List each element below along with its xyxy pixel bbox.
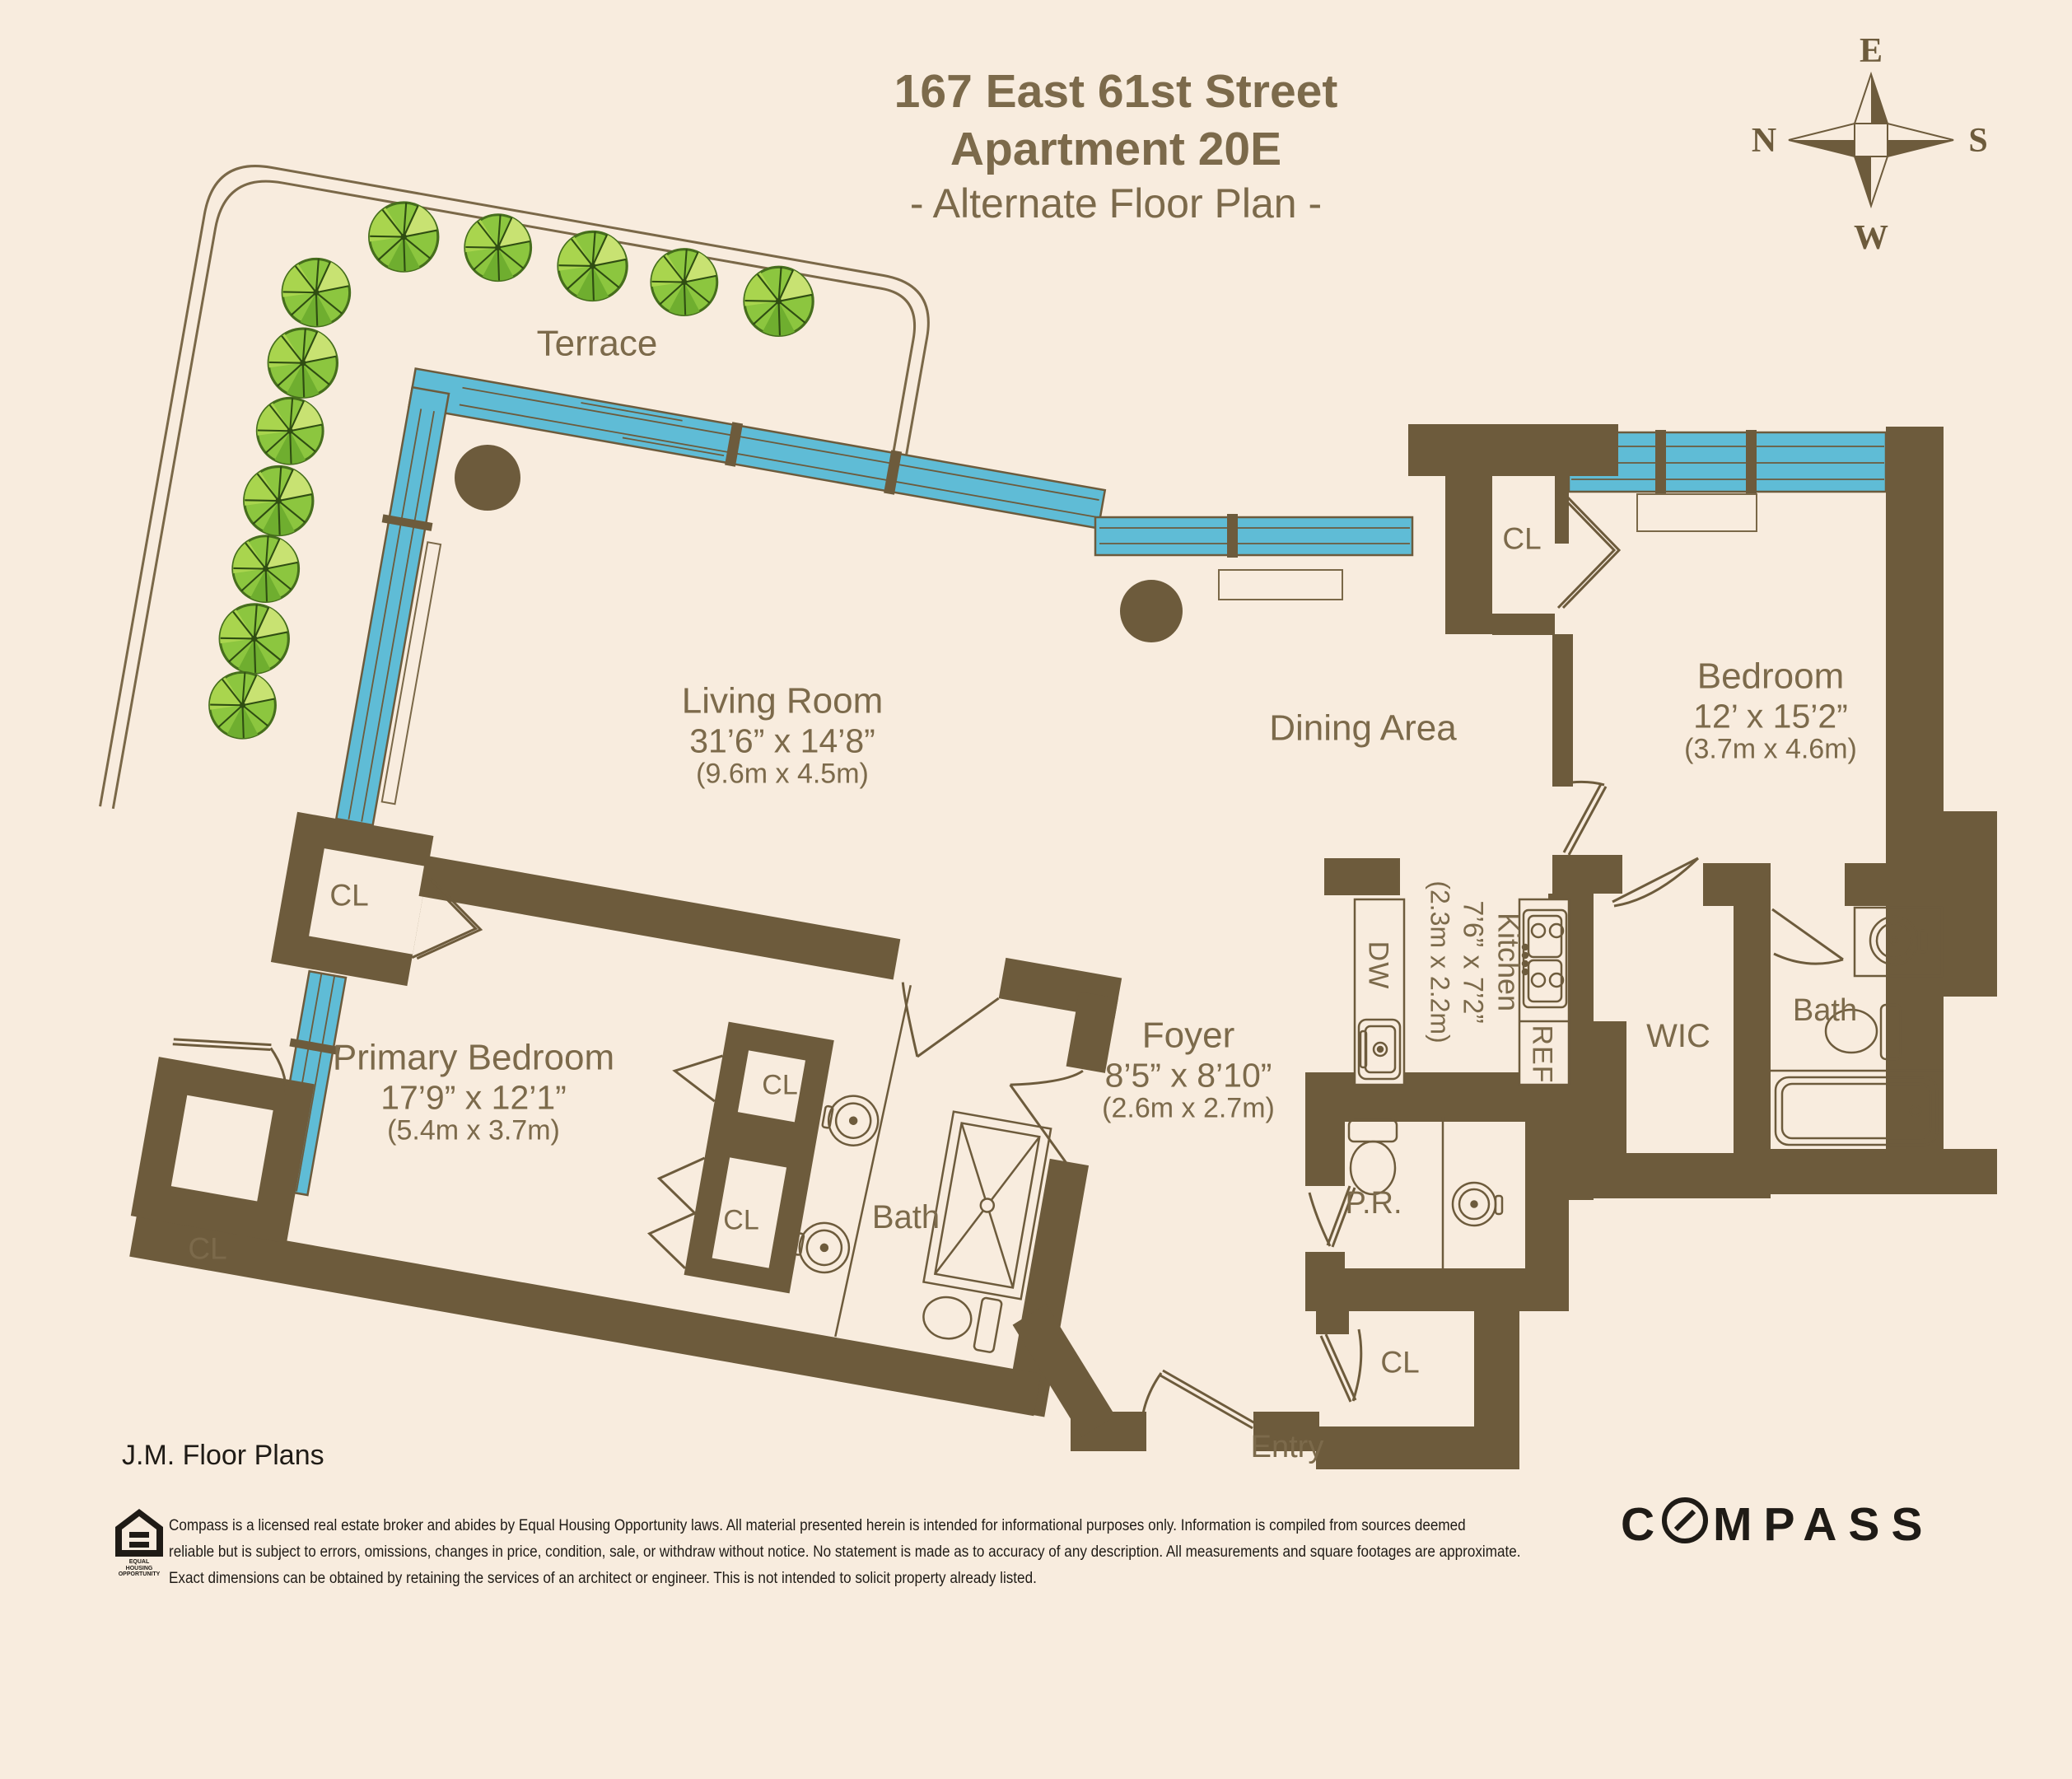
living-room-dimensions: 31’6” x 14’8” [689,721,875,760]
compass-east-label: E [1860,32,1883,70]
primary-bath-label: Bath [872,1198,940,1236]
closet-label-bath-small: CL [762,1069,797,1101]
compass-logo-letters: MPASS [1713,1497,1934,1552]
foyer-dimensions: 8’5” x 8’10” [1105,1056,1272,1095]
equal-housing-caption: EQUAL HOUSING OPPORTUNITY [115,1559,163,1578]
bedroom-dimensions: 12’ x 15’2” [1693,697,1848,735]
closet-label-bedroom: CL [1502,522,1541,558]
primary-bedroom-label: Primary Bedroom [333,1038,614,1080]
living-room-metric: (9.6m x 4.5m) [696,758,869,790]
disclaimer-line-2: reliable but is subject to errors, omiss… [169,1543,1520,1562]
floor-plan-credit: J.M. Floor Plans [122,1440,324,1472]
primary-suite-walls [124,796,1125,1417]
disclaimer-line-3: Exact dimensions can be obtained by reta… [169,1570,1037,1588]
kitchen-metric: (2.3m x 2.2m) [1425,880,1455,1043]
bath-label: Bath [1793,993,1857,1030]
dining-area-label: Dining Area [1269,708,1456,750]
closet-label-entry: CL [1380,1346,1419,1381]
page-title-plan-type: - Alternate Floor Plan - [910,180,1322,227]
closet-label-primary-west: CL [188,1232,226,1268]
structural-column [455,445,520,511]
kitchen-dimensions: 7’6” x 7’2” [1456,900,1488,1023]
foyer-metric: (2.6m x 2.7m) [1102,1092,1275,1124]
terrace-label: Terrace [537,324,658,366]
disclaimer-line-1: Compass is a licensed real estate broker… [169,1517,1466,1535]
foyer-label: Foyer [1142,1016,1234,1058]
equal-housing-icon [115,1509,163,1557]
bedroom-label: Bedroom [1697,656,1845,698]
compass-rose-icon: E W N S [1752,32,1988,257]
compass-north-label: N [1752,122,1776,160]
primary-bedroom-metric: (5.4m x 3.7m) [387,1114,560,1146]
wic-label: WIC [1646,1017,1710,1055]
structural-column [1120,580,1183,642]
dishwasher-label: DW [1361,941,1393,990]
compass-logo: C MPASS [1621,1497,1925,1543]
refrigerator-label: REF [1525,1025,1557,1084]
page-title-apartment: Apartment 20E [950,122,1281,176]
entry-label: Entry [1251,1430,1324,1466]
bedroom-metric: (3.7m x 4.6m) [1684,733,1857,765]
powder-room-label: P.R. [1345,1186,1402,1222]
kitchen-label: Kitchen [1491,913,1525,1011]
compass-logo-letter-c: C [1621,1497,1666,1552]
closet-label-bath-left: CL [723,1204,758,1236]
page-title-address: 167 East 61st Street [894,64,1338,119]
primary-bedroom-dimensions: 17’9” x 12’1” [380,1078,567,1117]
living-room-label: Living Room [682,681,884,723]
closet-label-living: CL [329,879,368,914]
compass-west-label: W [1854,219,1888,257]
compass-south-label: S [1968,122,1987,160]
